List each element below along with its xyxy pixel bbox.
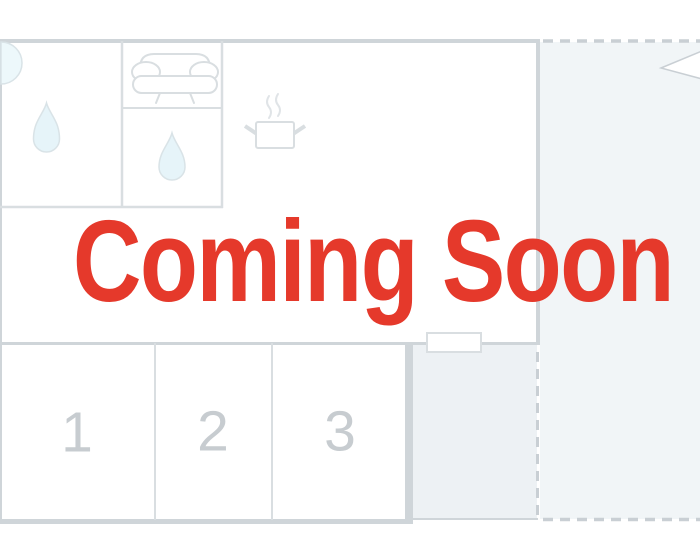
water-drop-icon [159,133,185,180]
room-number-3: 3 [324,404,356,461]
coming-soon-banner: Coming Soon [0,203,700,323]
sofa-icon [132,54,218,103]
room-number-2: 2 [197,404,229,461]
room-number-1: 1 [61,405,93,462]
coming-soon-text: Coming Soon [73,203,673,319]
window-icon [427,333,481,352]
floorplan-placeholder: 1 2 3 Coming Soon [0,0,700,560]
water-drop-icon [34,103,60,152]
cooking-pot-icon [245,94,305,148]
door-swing-icon [1,42,22,84]
